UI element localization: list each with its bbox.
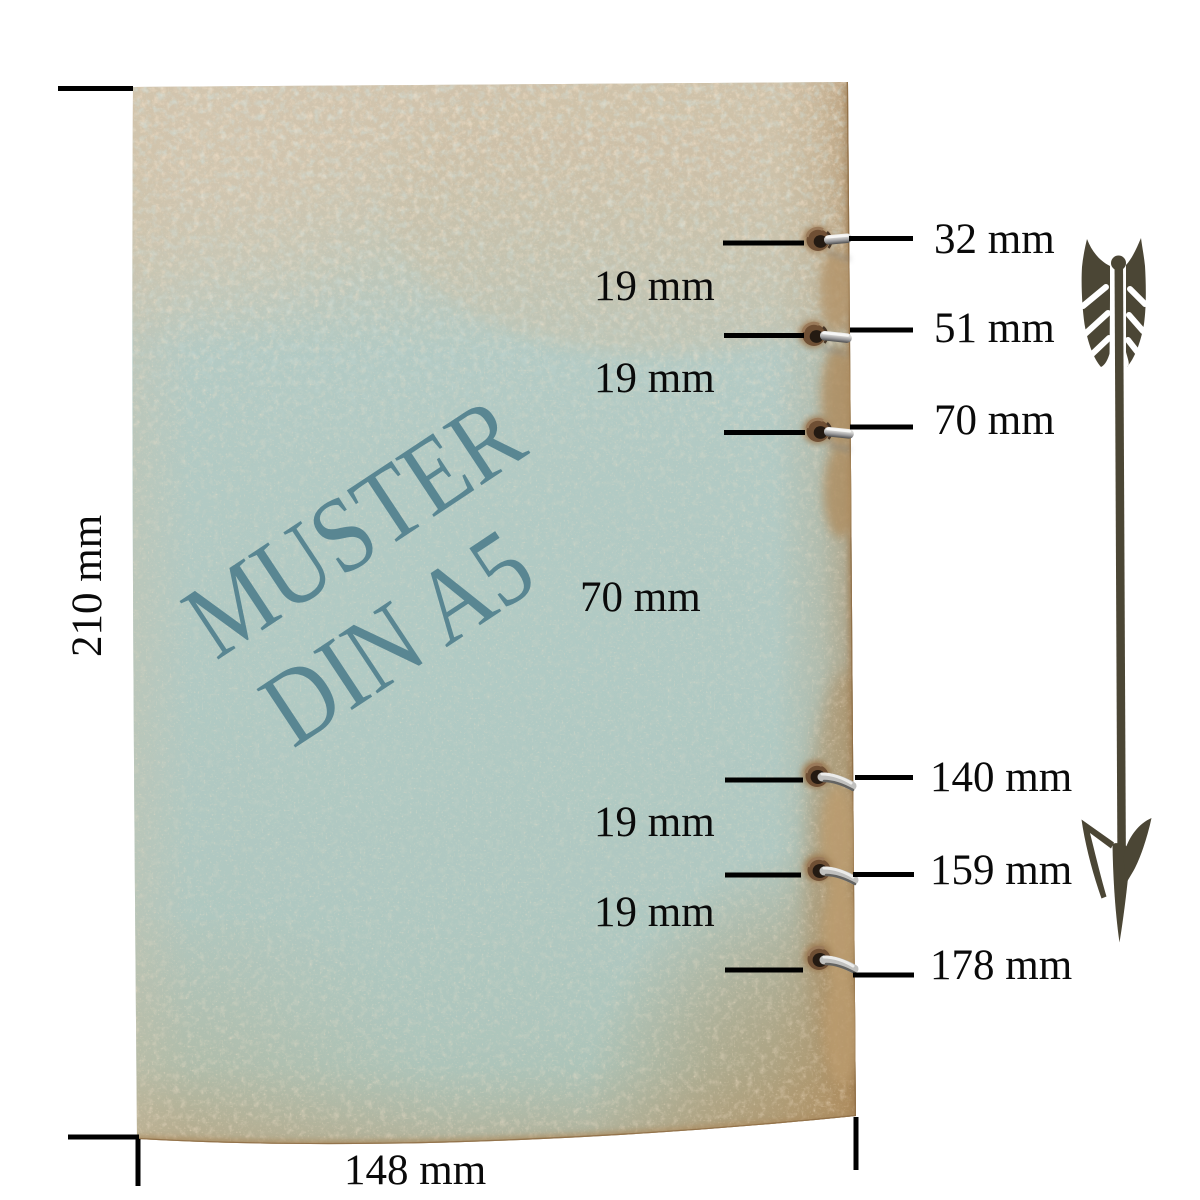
svg-text:19 mm: 19 mm bbox=[594, 263, 715, 310]
svg-text:178 mm: 178 mm bbox=[930, 942, 1072, 989]
svg-text:19 mm: 19 mm bbox=[594, 889, 715, 936]
svg-text:19 mm: 19 mm bbox=[594, 355, 715, 402]
svg-text:210 mm: 210 mm bbox=[64, 515, 111, 657]
svg-text:148 mm: 148 mm bbox=[344, 1147, 486, 1194]
svg-text:159 mm: 159 mm bbox=[930, 847, 1072, 894]
svg-text:32 mm: 32 mm bbox=[934, 216, 1055, 263]
svg-text:140 mm: 140 mm bbox=[930, 754, 1072, 801]
svg-text:19 mm: 19 mm bbox=[594, 799, 715, 846]
svg-text:51 mm: 51 mm bbox=[934, 305, 1055, 352]
svg-text:70 mm: 70 mm bbox=[580, 574, 701, 621]
svg-text:70 mm: 70 mm bbox=[934, 397, 1055, 444]
